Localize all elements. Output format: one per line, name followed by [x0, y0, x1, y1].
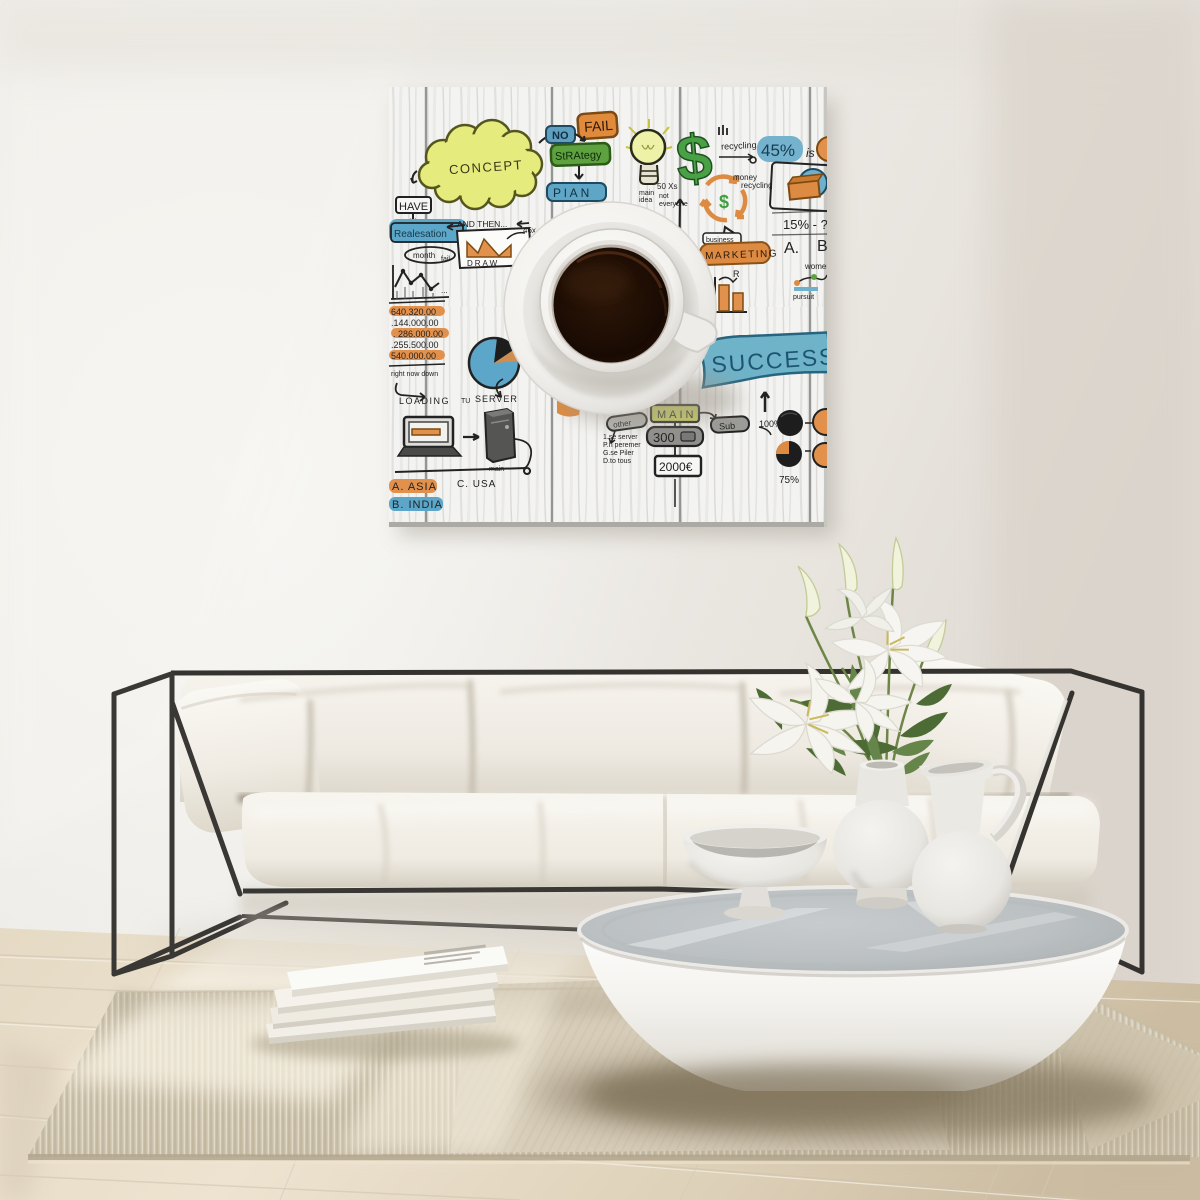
svg-text:. 286.000.00: . 286.000.00 — [393, 329, 443, 339]
svg-text:DRAW: DRAW — [467, 259, 499, 268]
svg-text:month: month — [413, 251, 435, 260]
svg-text:Sub: Sub — [719, 421, 736, 432]
svg-text:A.: A. — [784, 240, 799, 257]
svg-text:540.000.00: 540.000.00 — [391, 351, 436, 361]
svg-text:women: women — [804, 262, 831, 271]
svg-text:TU: TU — [461, 398, 470, 405]
svg-text:45%: 45% — [761, 141, 795, 160]
svg-text:R: R — [733, 269, 740, 279]
svg-text:recycling: recycling — [721, 140, 757, 152]
svg-text:SERVER: SERVER — [475, 394, 518, 404]
svg-text:FAIL: FAIL — [584, 117, 614, 135]
svg-text:640.320.00: 640.320.00 — [391, 307, 436, 317]
svg-text:...: ... — [441, 286, 448, 295]
svg-text:15% - ?: 15% - ? — [783, 217, 828, 232]
svg-text:.144.000.00: .144.000.00 — [391, 318, 439, 328]
svg-text:D.to tous: D.to tous — [603, 458, 632, 465]
svg-text:2000€: 2000€ — [659, 460, 693, 474]
svg-text:LOADING: LOADING — [399, 396, 450, 406]
svg-text:recycling: recycling — [741, 181, 773, 190]
svg-text:50 Xs: 50 Xs — [657, 182, 677, 191]
svg-text:1.se server: 1.se server — [603, 434, 638, 441]
svg-text:idea: idea — [639, 197, 652, 204]
svg-text:P.h peremer: P.h peremer — [603, 442, 641, 449]
svg-text:100%: 100% — [759, 419, 782, 429]
svg-text:75%: 75% — [779, 475, 799, 486]
svg-text:B. INDIA: B. INDIA — [392, 499, 443, 511]
svg-text:pursuit: pursuit — [793, 294, 814, 301]
svg-text:.255.500.00: .255.500.00 — [391, 340, 439, 350]
svg-text:is: is — [806, 146, 815, 160]
svg-text:G.se Piler: G.se Piler — [603, 450, 634, 457]
svg-text:AND THEN...: AND THEN... — [457, 219, 507, 229]
svg-text:StRAtegy: StRAtegy — [555, 149, 602, 163]
svg-text:fail: fail — [441, 256, 450, 263]
svg-text:HAVE: HAVE — [399, 201, 428, 213]
svg-text:NO: NO — [552, 130, 569, 142]
svg-text:right now down: right now down — [391, 371, 438, 378]
svg-text:PlAN: PlAN — [553, 186, 592, 200]
svg-text:300: 300 — [653, 430, 675, 445]
svg-text:not: not — [659, 193, 669, 200]
svg-text:Realesation: Realesation — [394, 229, 447, 240]
svg-text:$: $ — [719, 192, 729, 212]
svg-text:A. ASIA: A. ASIA — [392, 481, 437, 493]
svg-text:C. USA: C. USA — [457, 479, 496, 490]
svg-text:main: main — [639, 190, 654, 197]
